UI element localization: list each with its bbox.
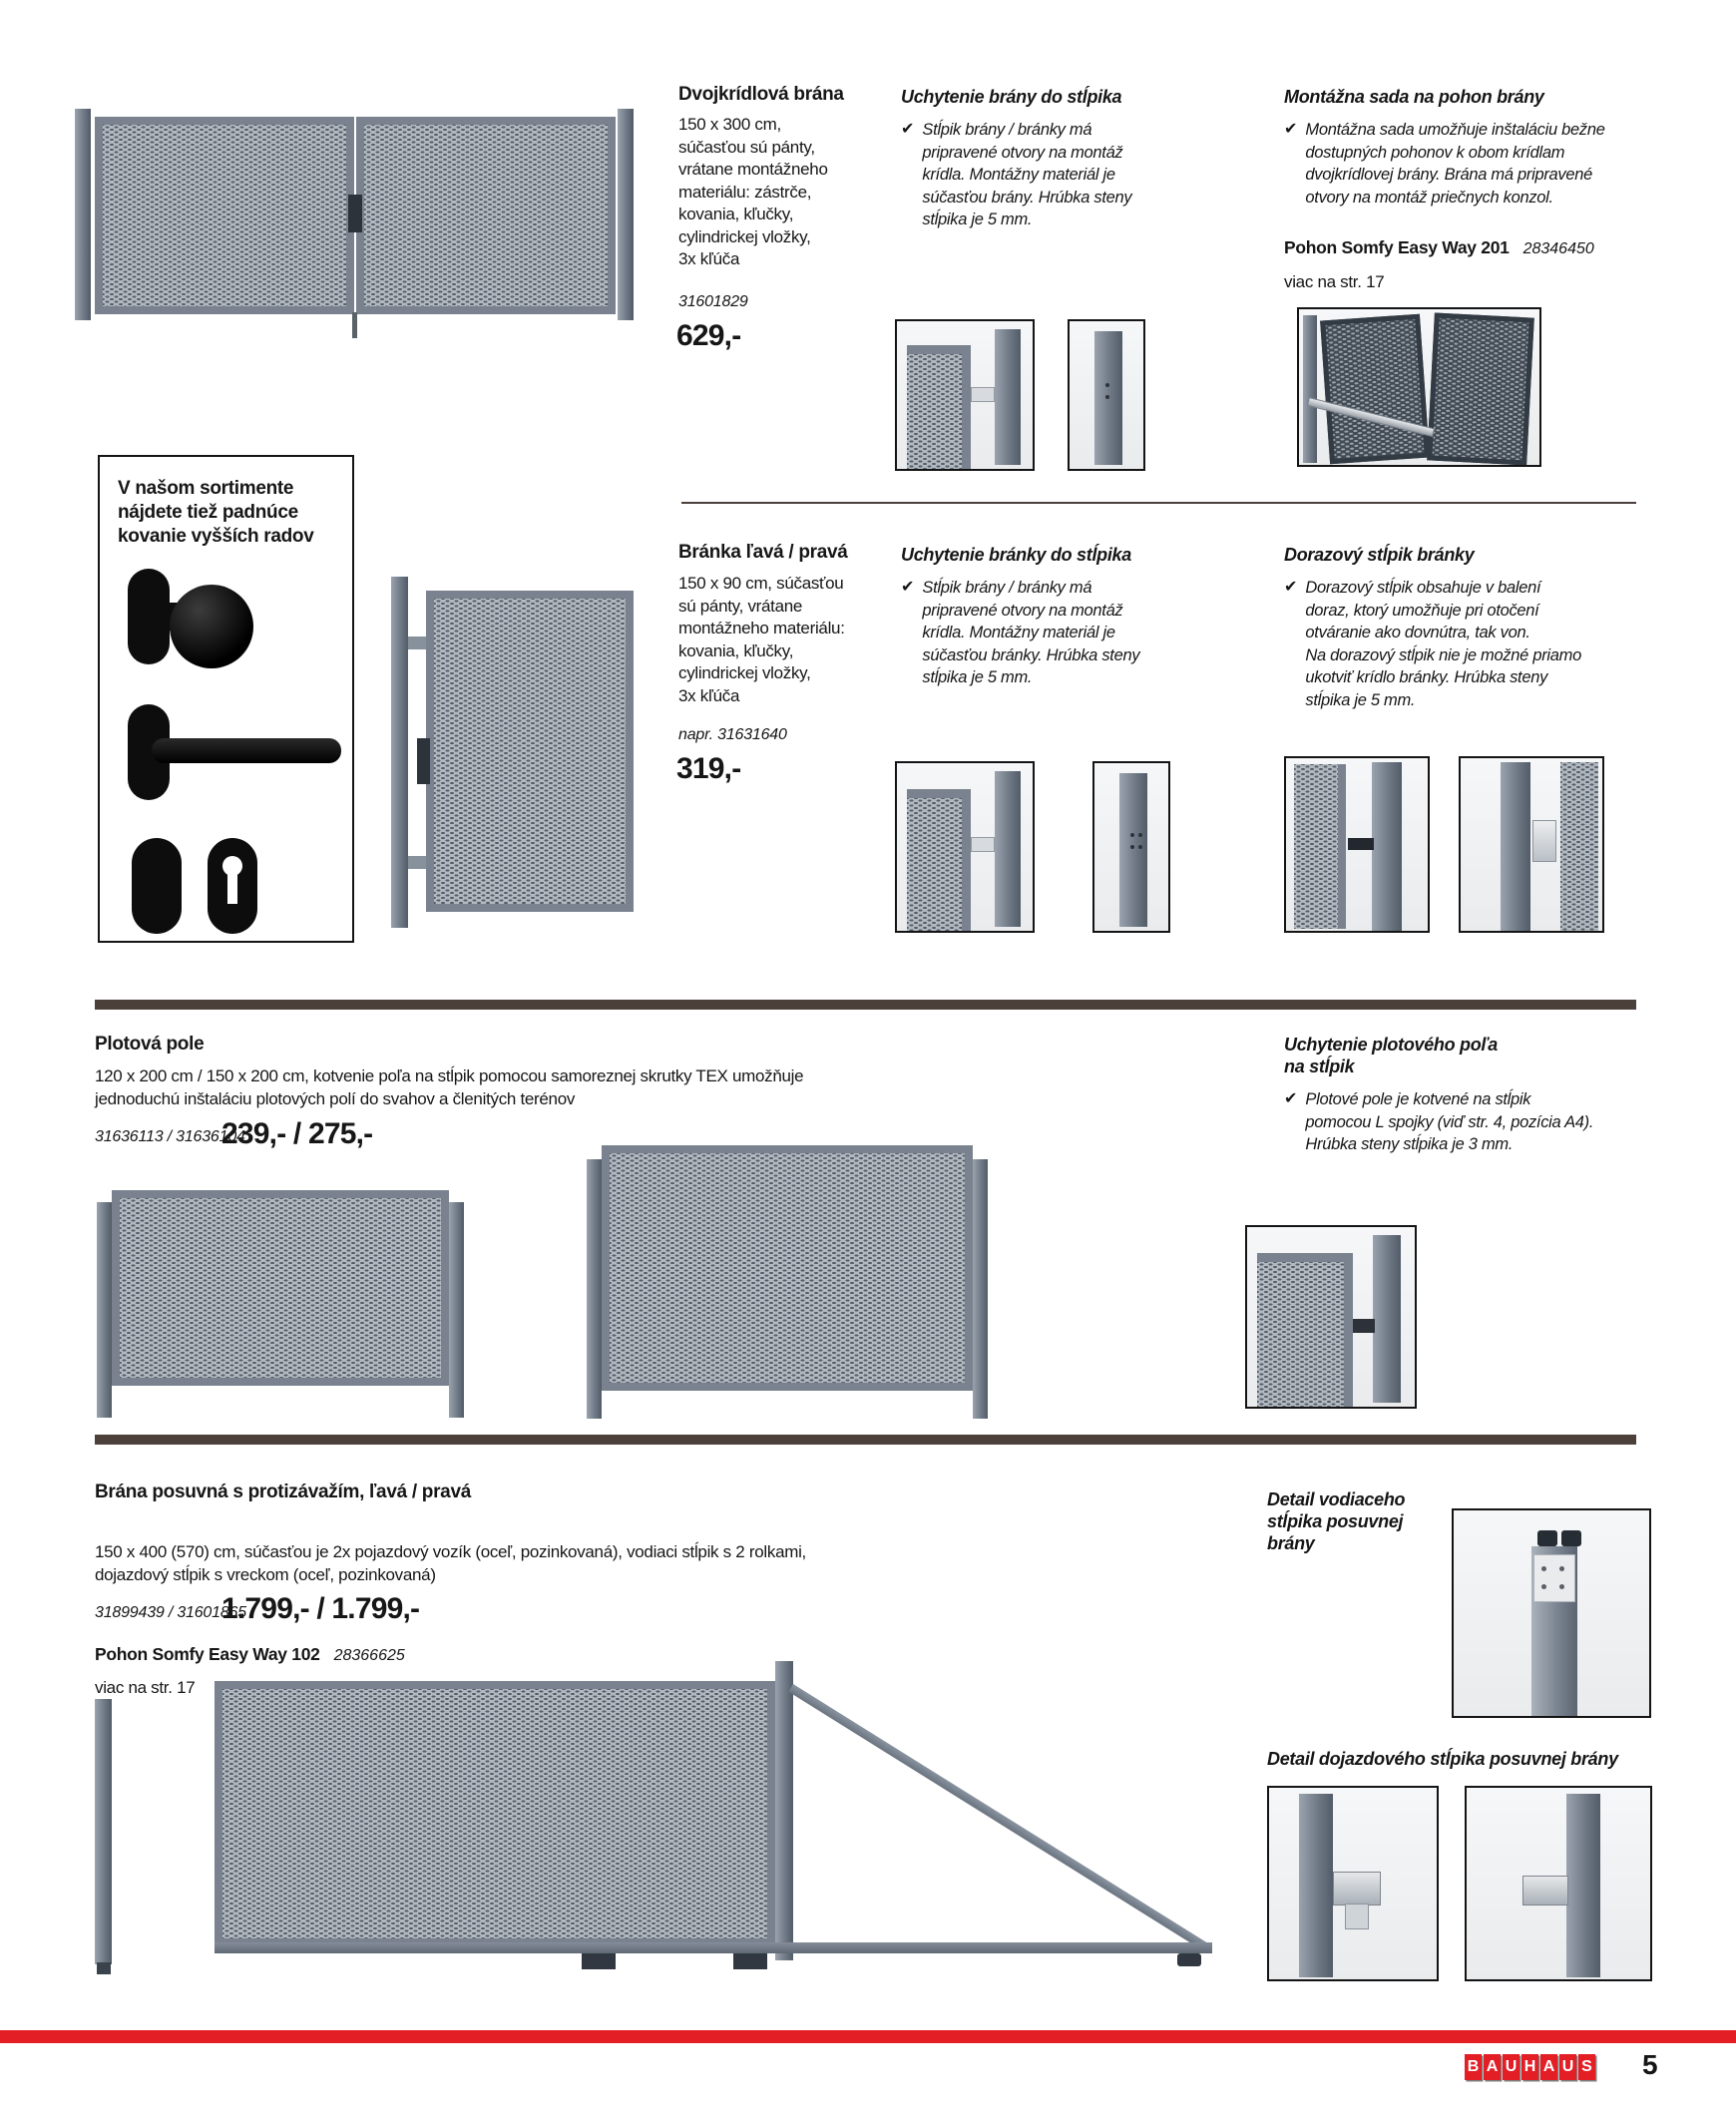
product-title: Plotová pole [95, 1034, 204, 1056]
roller [1561, 1530, 1581, 1546]
drive-product-line: Pohon Somfy Easy Way 201 28346450 [1284, 237, 1594, 258]
check-icon: ✔ [1284, 577, 1297, 711]
screw-hole [1130, 845, 1134, 849]
check-item: ✔ Stĺpik brány / bránky má pripravené ot… [901, 577, 1180, 689]
lone-post [95, 1699, 112, 1964]
detail-photo-post [1092, 761, 1170, 933]
section-divider [95, 1000, 1636, 1010]
post-shape [1299, 1794, 1333, 1977]
l-bracket [1353, 1319, 1375, 1333]
trolley [733, 1953, 767, 1969]
fence-post [449, 1202, 464, 1418]
check-item: ✔ Dorazový stĺpik obsahuje v balení dora… [1284, 577, 1643, 711]
hinge-bracket [971, 387, 995, 402]
diagonal-beam [788, 1684, 1209, 1951]
detail-caption: Detail vodiaceho stĺpika posuvnej brány [1267, 1488, 1457, 1554]
catch-bracket [1333, 1872, 1381, 1906]
gate-drop-rod [352, 312, 357, 338]
latch [1348, 838, 1374, 850]
lever-handle [152, 738, 341, 763]
info-block-stop-post: Dorazový stĺpik bránky ✔ Dorazový stĺpik… [1284, 544, 1643, 711]
bauhaus-logo: B A U H A U S [1465, 2054, 1595, 2080]
mesh-corner [907, 345, 971, 471]
logo-letter-tile: U [1559, 2054, 1576, 2080]
post-shape [1372, 762, 1402, 931]
fence-panel-120-illustration [95, 1180, 466, 1422]
product-title: Brána posuvná s protizávažím, ľavá / pra… [95, 1482, 471, 1503]
section-divider [95, 1435, 1636, 1445]
check-icon: ✔ [1284, 1088, 1297, 1156]
screw-hole [1105, 383, 1109, 387]
info-text: Dorazový stĺpik obsahuje v balení doraz,… [1305, 577, 1581, 711]
catch-bracket [1522, 1876, 1568, 1906]
gate-lock [417, 738, 430, 784]
product-description: 150 x 300 cm, súčasťou sú pánty, vrátane… [678, 114, 883, 271]
roller [1537, 1530, 1557, 1546]
article-number: napr. 31631640 [678, 726, 787, 744]
hinge [408, 636, 428, 649]
screw-hole [1559, 1584, 1564, 1589]
knob-ball [170, 585, 253, 668]
logo-letter-tile: B [1465, 2054, 1482, 2080]
detail-photo-gate-corner [895, 319, 1035, 471]
info-block-wicket-mounting: Uchytenie bránky do stĺpika ✔ Stĺpik brá… [901, 544, 1180, 689]
info-text: Plotové pole je kotvené na stĺpik pomoco… [1305, 1088, 1593, 1156]
single-gate-illustration [389, 567, 647, 938]
hinge-bracket [971, 837, 995, 852]
mesh-edge [1560, 762, 1598, 931]
info-title: Montážna sada na pohon brány [1284, 86, 1628, 108]
sliding-gate-illustration [95, 1651, 1227, 2000]
logo-letter-tile: A [1540, 2054, 1557, 2080]
product-title: Dvojkrídlová brána [678, 84, 898, 106]
keyhole-slot [227, 870, 237, 904]
screw-hole [1138, 833, 1142, 837]
fence-panel [602, 1145, 973, 1391]
screw-hole [1559, 1566, 1564, 1571]
double-gate-illustration [65, 95, 644, 339]
gate-leaf-shape [1427, 312, 1534, 465]
gate-leaf [426, 591, 634, 912]
catch-pocket [1345, 1904, 1369, 1929]
info-block-panel-mounting: Uchytenie plotového poľa na stĺpik ✔ Plo… [1284, 1034, 1628, 1156]
end-wheel [1177, 1953, 1201, 1966]
drive-article-number: 28346450 [1523, 240, 1594, 258]
logo-letter-tile: A [1484, 2054, 1501, 2080]
screw-hole [1130, 833, 1134, 837]
fence-post [587, 1159, 602, 1419]
guide-post [775, 1661, 793, 1960]
post-shape [995, 771, 1021, 927]
logo-letter-tile: H [1521, 2054, 1538, 2080]
product-description: 150 x 400 (570) cm, súčasťou je 2x pojaz… [95, 1541, 1152, 1586]
product-title: Bránka ľavá / pravá [678, 542, 908, 564]
screw-hole [1138, 845, 1142, 849]
check-item: ✔ Stĺpik brány / bránky má pripravené ot… [901, 119, 1180, 231]
fence-post [973, 1159, 988, 1419]
fence-panel-150-illustration [587, 1135, 988, 1423]
product-description: 150 x 90 cm, súčasťou sú pánty, vrátane … [678, 573, 893, 707]
detail-photo-wicket-corner [895, 761, 1035, 933]
hinge-plate [1532, 820, 1556, 862]
detail-photo-panel-mount [1245, 1225, 1417, 1409]
post-shape [995, 329, 1021, 465]
detail-photo-guide-post [1452, 1508, 1651, 1718]
post-shape [1303, 315, 1317, 463]
screw-hole [1105, 395, 1109, 399]
gate-leaf-right [356, 117, 616, 314]
info-title: Dorazový stĺpik bránky [1284, 544, 1643, 566]
detail-photo-stop-post-latch [1284, 756, 1430, 933]
info-title: Uchytenie brány do stĺpika [901, 86, 1180, 108]
mesh-corner [907, 789, 971, 933]
info-title: Uchytenie plotového poľa na stĺpik [1284, 1034, 1628, 1077]
check-icon: ✔ [901, 577, 914, 689]
see-more-note: viac na str. 17 [1284, 271, 1384, 294]
drive-name: Pohon Somfy Easy Way 201 [1284, 237, 1510, 258]
sortiment-note-box: V našom sortimente nájdete tiež padnúce … [98, 455, 354, 943]
price: 239,- / 275,- [221, 1117, 372, 1151]
mesh-edge [1294, 764, 1346, 929]
catalog-page: Dvojkrídlová brána 150 x 300 cm, súčasťo… [0, 0, 1736, 2118]
gate-lock [348, 195, 362, 232]
info-title: Uchytenie bránky do stĺpika [901, 544, 1180, 566]
screw-hole [1541, 1584, 1546, 1589]
screw-hole [1541, 1566, 1546, 1571]
escutcheon-cylinder [208, 838, 257, 934]
fence-panel [112, 1190, 449, 1386]
gate-leaf-shape [1320, 314, 1430, 465]
post-foot [97, 1962, 111, 1974]
hinge [408, 856, 428, 869]
gate-leaf-left [95, 117, 354, 314]
logo-letter-tile: S [1578, 2054, 1595, 2080]
footer-red-bar [0, 2030, 1736, 2043]
info-text: Montážna sada umožňuje inštaláciu bežne … [1305, 119, 1604, 209]
price: 1.799,- / 1.799,- [221, 1592, 419, 1626]
post-shape [1566, 1794, 1600, 1977]
check-item: ✔ Plotové pole je kotvené na stĺpik pomo… [1284, 1088, 1628, 1156]
check-item: ✔ Montážna sada umožňuje inštaláciu bežn… [1284, 119, 1628, 209]
detail-caption: Detail dojazdového stĺpika posuvnej brán… [1267, 1748, 1666, 1770]
escutcheon-blank [132, 838, 182, 934]
bottom-beam [215, 1942, 1212, 1953]
sortiment-note-text: V našom sortimente nájdete tiež padnúce … [118, 477, 334, 549]
detail-photo-stop-post-hinge [1459, 756, 1604, 933]
price: 629,- [676, 319, 740, 353]
post-shape [1119, 773, 1147, 927]
info-text: Stĺpik brány / bránky má pripravené otvo… [922, 119, 1131, 231]
bracket-plate [1533, 1554, 1575, 1602]
info-text: Stĺpik brány / bránky má pripravené otvo… [922, 577, 1139, 689]
check-icon: ✔ [901, 119, 914, 231]
section-divider-thin [681, 502, 1636, 504]
info-block-drive-kit: Montážna sada na pohon brány ✔ Montážna … [1284, 86, 1628, 209]
post-shape [1373, 1235, 1401, 1403]
detail-photo-post [1068, 319, 1145, 471]
gate-post [391, 577, 408, 928]
gate-leaf [215, 1681, 775, 1946]
page-number: 5 [1642, 2049, 1658, 2081]
info-block-gate-mounting: Uchytenie brány do stĺpika ✔ Stĺpik brán… [901, 86, 1180, 231]
detail-photo-drive-kit [1297, 307, 1541, 467]
fence-post [97, 1202, 112, 1418]
price: 319,- [676, 752, 740, 786]
check-icon: ✔ [1284, 119, 1297, 209]
product-description: 120 x 200 cm / 150 x 200 cm, kotvenie po… [95, 1065, 1112, 1110]
gate-post-left [75, 109, 91, 320]
gate-post-right [618, 109, 634, 320]
trolley [582, 1953, 616, 1969]
mesh-corner [1257, 1253, 1353, 1409]
post-shape [1501, 762, 1530, 931]
detail-photo-end-post-right [1465, 1786, 1652, 1981]
detail-photo-end-post-left [1267, 1786, 1439, 1981]
article-number: 31601829 [678, 293, 748, 311]
logo-letter-tile: U [1503, 2054, 1519, 2080]
